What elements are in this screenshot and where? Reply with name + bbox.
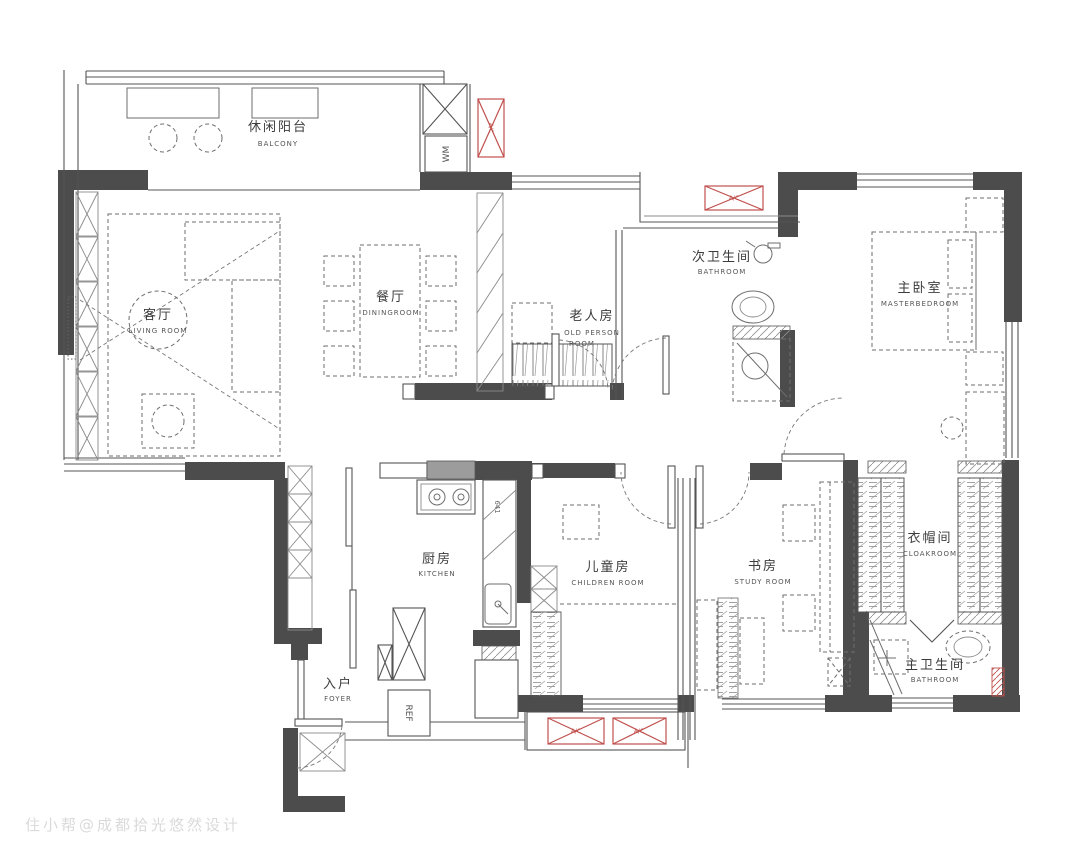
sofa	[142, 222, 280, 448]
svg-text:主卧室: 主卧室	[897, 280, 942, 296]
svg-text:入户: 入户	[323, 676, 353, 692]
room-label-children: 儿童房 CHILDREN ROOM	[571, 559, 644, 587]
svg-text:休闲阳台: 休闲阳台	[248, 120, 308, 135]
towel-rack-red	[992, 668, 1004, 696]
svg-text:BATHROOM: BATHROOM	[698, 268, 747, 276]
svg-text:主卫生间: 主卫生间	[905, 658, 965, 673]
room-label-study: 书房 STUDY ROOM	[734, 558, 791, 586]
ac-label: A/C	[634, 728, 644, 735]
ac-unit-south-2: A/C	[613, 718, 666, 744]
svg-text:WM: WM	[442, 146, 452, 163]
svg-text:OLD PERSON: OLD PERSON	[564, 329, 620, 337]
ac-label: A/C	[487, 123, 494, 133]
ac-label: A/C	[571, 728, 581, 735]
floorplan-canvas: A/C A/C A/C A/C	[0, 0, 1080, 864]
master-bedroom-door	[782, 398, 844, 461]
watermark: 住小帮@成都拾光悠然设计	[25, 816, 241, 834]
svg-text:CHILDREN ROOM: CHILDREN ROOM	[571, 579, 644, 587]
kitchen-pantry-cabinet	[378, 608, 425, 680]
laundry-cabinet	[423, 84, 467, 134]
svg-text:CLOAKROOM: CLOAKROOM	[903, 550, 957, 558]
room-label-bath1: 主卫生间 BATHROOM	[905, 658, 965, 684]
study-furniture	[697, 482, 854, 698]
svg-text:儿童房: 儿童房	[585, 559, 630, 575]
svg-text:MASTERBEDROOM: MASTERBEDROOM	[881, 300, 959, 308]
svg-text:KITCHEN: KITCHEN	[418, 570, 455, 578]
svg-text:老人房: 老人房	[569, 308, 614, 324]
svg-text:餐厅: 餐厅	[376, 289, 406, 305]
stove	[417, 480, 475, 514]
study-room-door	[696, 466, 749, 528]
svg-text:书房: 书房	[748, 558, 778, 574]
svg-text:FOYER: FOYER	[324, 695, 352, 703]
svg-text:BATHROOM: BATHROOM	[911, 676, 960, 684]
entry-shoe-cabinet	[288, 466, 312, 630]
bath2-threshold	[733, 326, 790, 339]
ac-unit-south-1: A/C	[548, 718, 604, 744]
children-furniture	[531, 505, 676, 696]
dining-side-cabinet	[477, 193, 503, 391]
svg-text:ROOM: ROOM	[569, 340, 595, 348]
room-label-master: 主卧室 MASTERBEDROOM	[881, 280, 959, 308]
kitchen-lower-cabinet	[475, 660, 518, 718]
svg-text:LIVING ROOM: LIVING ROOM	[129, 327, 188, 335]
svg-text:客厅: 客厅	[143, 307, 173, 323]
master-desk	[941, 392, 1004, 464]
ac-unit-balcony: A/C	[478, 99, 504, 157]
room-label-living: 客厅 LIVING ROOM	[129, 291, 188, 349]
dimension-641: 641	[493, 500, 501, 513]
room-label-bath2: 次卫生间 BATHROOM	[692, 249, 752, 276]
svg-text:厨房: 厨房	[422, 551, 452, 567]
room-label-dining: 餐厅 DININGROOM	[362, 289, 419, 317]
ac-unit-bath2: A/C	[705, 186, 763, 210]
kitchen-hatch-box	[482, 646, 516, 660]
ac-label: A/C	[729, 195, 739, 202]
washing-machine: WM	[425, 136, 467, 172]
entry-door	[295, 719, 342, 768]
refrigerator: REF	[388, 690, 430, 736]
room-label-foyer: 入户 FOYER	[323, 676, 353, 703]
south-ac-platform	[527, 712, 688, 768]
svg-text:BALCONY: BALCONY	[258, 140, 298, 148]
foyer-cabinet	[300, 733, 345, 771]
tv-wall-cabinet	[76, 192, 98, 460]
cloakroom-double-door	[910, 620, 954, 642]
room-label-kitchen: 厨房 KITCHEN	[418, 551, 455, 578]
svg-text:REF: REF	[403, 704, 413, 721]
room-label-cloak: 衣帽间 CLOAKROOM	[903, 530, 957, 558]
children-room-door	[621, 466, 675, 528]
svg-text:次卫生间: 次卫生间	[692, 249, 752, 265]
svg-text:DININGROOM: DININGROOM	[362, 309, 419, 317]
room-label-elder: 老人房 OLD PERSON ROOM	[564, 308, 620, 348]
room-label-balcony: 休闲阳台 BALCONY	[248, 120, 308, 148]
children-side-cabinet	[531, 566, 557, 612]
svg-text:STUDY ROOM: STUDY ROOM	[734, 578, 791, 586]
svg-text:衣帽间: 衣帽间	[907, 530, 952, 546]
